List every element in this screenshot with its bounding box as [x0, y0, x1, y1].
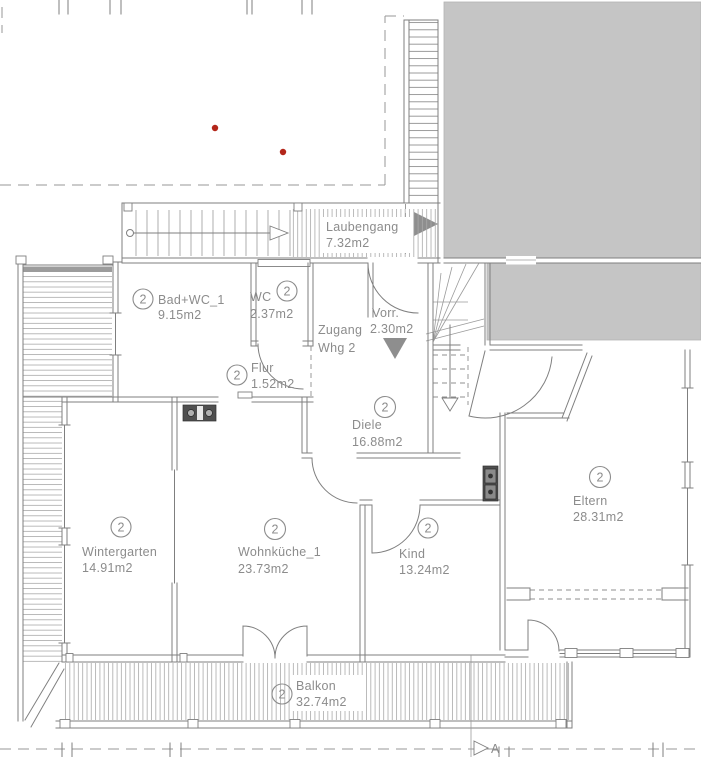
svg-text:Wintergarten: Wintergarten [82, 545, 157, 559]
svg-text:28.31m2: 28.31m2 [573, 510, 624, 524]
door-arc-french-balkon [243, 626, 307, 658]
svg-text:2: 2 [272, 523, 279, 537]
svg-text:2: 2 [140, 293, 147, 307]
svg-text:Vorr.: Vorr. [372, 306, 399, 320]
svg-text:Laubengang: Laubengang [326, 220, 399, 234]
svg-text:Eltern: Eltern [573, 494, 607, 508]
red-survey-dot-2 [280, 149, 286, 155]
laubengang-walkway [122, 203, 440, 267]
room-label-wintergarten: 2 Wintergarten 14.91m2 [82, 517, 157, 575]
svg-text:1.52m2: 1.52m2 [251, 377, 295, 391]
door-arc-kind [372, 505, 420, 553]
room-label-wc: 2 WC 2.37m2 [250, 281, 297, 321]
svg-text:2: 2 [234, 369, 241, 383]
svg-text:2: 2 [382, 401, 389, 415]
svg-text:Whg 2: Whg 2 [318, 341, 356, 355]
stair-walk-line [127, 226, 289, 240]
room-label-diele: 2 Diele 16.88m2 [352, 397, 403, 450]
floor-plan-page: A Laubengang 7.32m2 2 Bad+WC_1 9.15m2 2 … [0, 0, 701, 757]
svg-text:Balkon: Balkon [296, 679, 336, 693]
neighbor-parcel-outline [0, 0, 397, 185]
svg-text:2.37m2: 2.37m2 [250, 307, 294, 321]
shaft-appliance-icon [483, 466, 498, 501]
room-label-bad-wc: 2 Bad+WC_1 9.15m2 [133, 289, 225, 322]
floor-plan: A Laubengang 7.32m2 2 Bad+WC_1 9.15m2 2 … [0, 0, 701, 757]
svg-text:2: 2 [284, 285, 291, 299]
kitchen-block-icon [183, 405, 216, 421]
svg-text:13.24m2: 13.24m2 [399, 563, 450, 577]
entry-direction-arrow-down-icon [383, 338, 407, 359]
room-label-vorraum: Vorr. 2.30m2 [370, 306, 414, 336]
svg-text:32.74m2: 32.74m2 [296, 695, 347, 709]
parcel-line-bottom [0, 743, 701, 757]
section-arrow-icon [474, 741, 488, 755]
svg-text:Bad+WC_1: Bad+WC_1 [158, 293, 225, 307]
red-survey-dot-1 [212, 125, 218, 131]
svg-text:Flur: Flur [251, 361, 274, 375]
door-arc-eltern-balkon [528, 620, 559, 651]
svg-text:2.30m2: 2.30m2 [370, 322, 414, 336]
svg-text:Wohnküche_1: Wohnküche_1 [238, 545, 321, 559]
svg-text:Zugang: Zugang [318, 323, 362, 337]
svg-text:14.91m2: 14.91m2 [82, 561, 133, 575]
svg-text:Diele: Diele [352, 418, 382, 432]
room-label-flur: 2 Flur 1.52m2 [227, 361, 295, 391]
room-label-zugang: Zugang Whg 2 [318, 323, 362, 355]
door-arc-wohnkueche [312, 458, 357, 503]
svg-text:WC: WC [250, 290, 271, 304]
door-arc-eltern [469, 351, 552, 418]
room-label-wohnkueche: 2 Wohnküche_1 23.73m2 [238, 519, 321, 577]
svg-text:2: 2 [425, 522, 432, 536]
svg-text:2: 2 [597, 471, 604, 485]
room-label-kind: 2 Kind 13.24m2 [399, 518, 450, 577]
svg-text:Kind: Kind [399, 547, 425, 561]
svg-text:16.88m2: 16.88m2 [352, 435, 403, 449]
svg-text:9.15m2: 9.15m2 [158, 308, 202, 322]
svg-text:2: 2 [279, 688, 286, 702]
svg-text:7.32m2: 7.32m2 [326, 236, 370, 250]
room-label-eltern: 2 Eltern 28.31m2 [573, 467, 624, 525]
stair-down-arrow-icon [442, 398, 458, 411]
svg-text:2: 2 [118, 521, 125, 535]
svg-text:23.73m2: 23.73m2 [238, 562, 289, 576]
neighbor-building-mass [444, 2, 701, 340]
